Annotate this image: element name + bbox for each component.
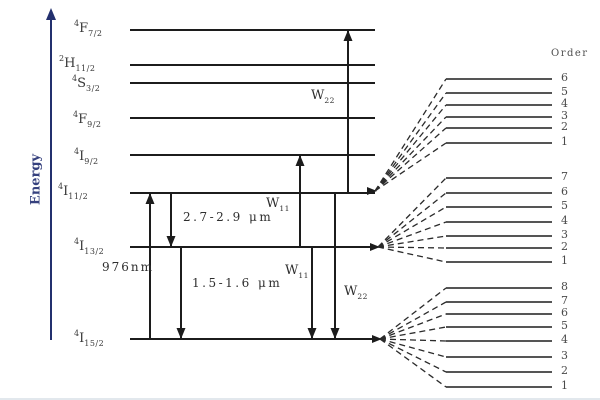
stark-4i15-2-order-6: 6 [561, 306, 568, 319]
annotation-label-976nm: 976nm [102, 260, 154, 274]
stark-4i13-2-order-4: 4 [561, 214, 568, 227]
level-label-4f9-2: 4F9/2 [73, 110, 102, 129]
stark-4i11-2-order-1: 1 [561, 135, 568, 148]
energy-axis-label: Energy [29, 150, 44, 210]
annotation-label-w22-lower: W22 [344, 284, 368, 301]
stark-4i15-2-order-4: 4 [561, 333, 568, 346]
stark-4i13-2-order-5: 5 [561, 199, 568, 212]
stark-4i13-2-order-6: 6 [561, 185, 568, 198]
energy-level-diagram: Energy Order 4F7/22H11/24S3/24F9/24I9/24… [0, 0, 600, 400]
stark-4i15-2-order-2: 2 [561, 364, 568, 377]
stark-4i15-2-order-3: 3 [561, 349, 568, 362]
stark-4i13-2-order-2: 2 [561, 240, 568, 253]
level-label-4i11-2: 4I11/2 [58, 182, 88, 201]
level-label-4f7-2: 4F7/2 [74, 19, 103, 38]
stark-4i11-2-order-2: 2 [561, 120, 568, 133]
level-label-4s3-2: 4S3/2 [72, 74, 100, 93]
level-label-4i13-2: 4I13/2 [74, 237, 104, 256]
annotation-label-1-5-1-6um: 1.5-1.6 μm [192, 276, 282, 290]
level-label-4i15-2: 4I15/2 [74, 329, 104, 348]
level-label-4i9-2: 4I9/2 [74, 147, 99, 166]
annotation-label-w11-upper: W11 [266, 196, 290, 213]
stark-4i15-2-order-1: 1 [561, 379, 568, 392]
annotation-label-w22-upper: W22 [311, 88, 335, 105]
stark-4i15-2-order-8: 8 [561, 280, 568, 293]
labels-layer: Energy Order 4F7/22H11/24S3/24F9/24I9/24… [0, 0, 600, 400]
stark-4i13-2-order-7: 7 [561, 170, 568, 183]
order-column-header: Order [551, 48, 589, 59]
stark-4i11-2-order-6: 6 [561, 71, 568, 84]
level-label-2h11-2: 2H11/2 [59, 54, 95, 73]
stark-4i15-2-order-5: 5 [561, 319, 568, 332]
annotation-label-2-7-2-9um: 2.7-2.9 μm [183, 210, 273, 224]
annotation-label-w11-lower: W11 [285, 263, 309, 280]
stark-4i13-2-order-1: 1 [561, 254, 568, 267]
